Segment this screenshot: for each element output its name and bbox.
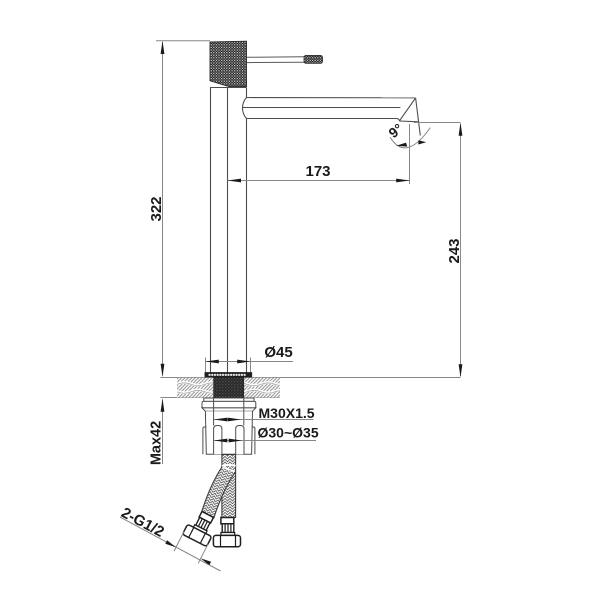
- svg-text:173: 173: [305, 163, 330, 180]
- svg-text:Ø45: Ø45: [264, 344, 292, 361]
- svg-text:M30X1.5: M30X1.5: [259, 405, 315, 421]
- svg-text:322: 322: [148, 196, 165, 221]
- svg-text:Ø30~Ø35: Ø30~Ø35: [258, 425, 319, 441]
- svg-text:243: 243: [446, 238, 463, 263]
- svg-text:Max42: Max42: [149, 421, 165, 465]
